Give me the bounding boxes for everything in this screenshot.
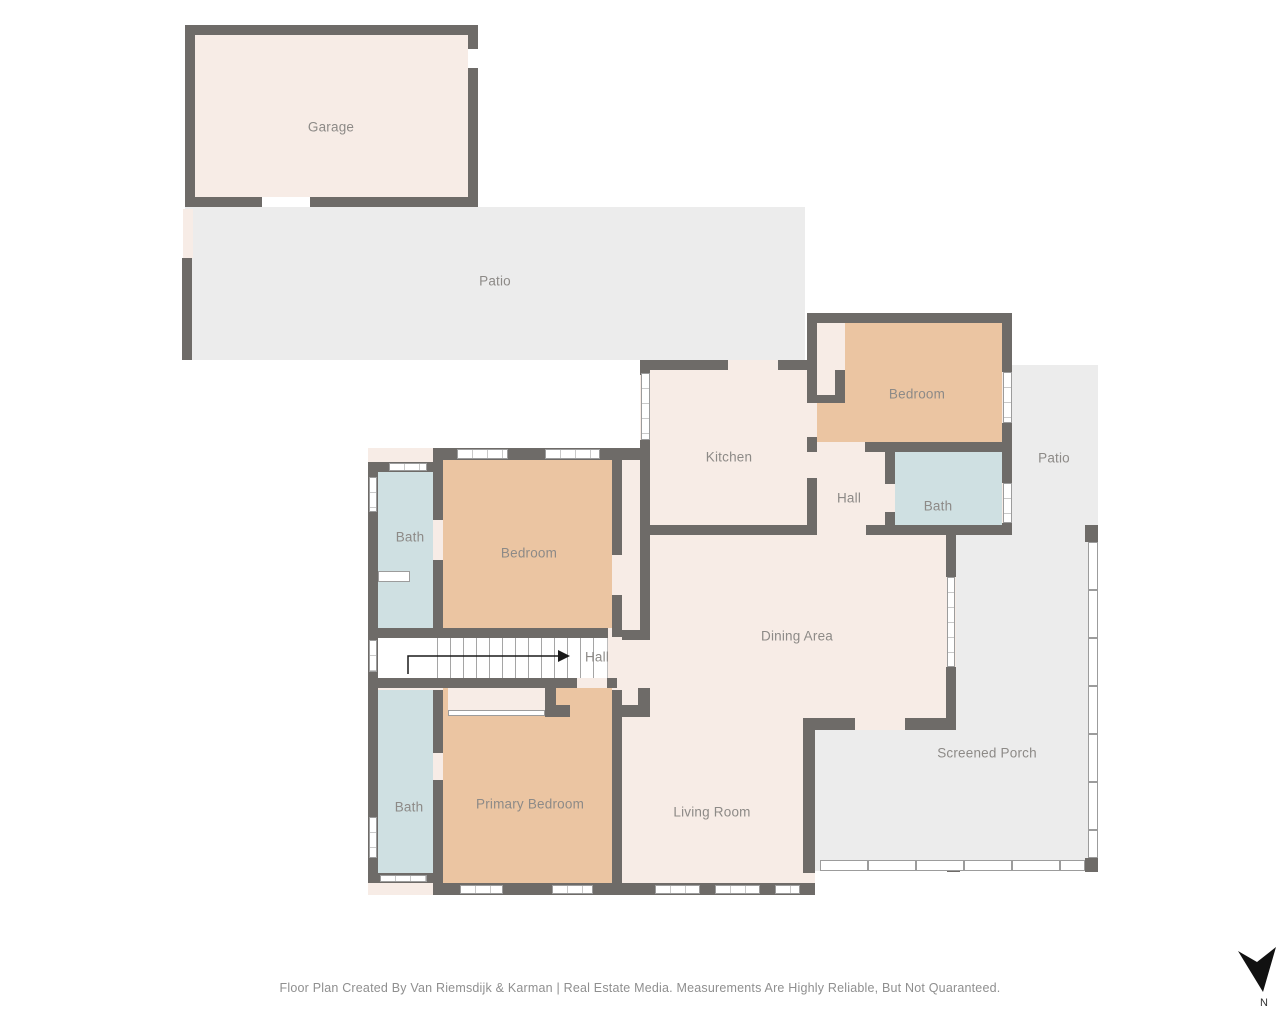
screen-wall xyxy=(1088,542,1098,858)
window xyxy=(775,885,800,894)
wall xyxy=(1002,523,1012,535)
wall xyxy=(946,535,956,577)
window xyxy=(1003,483,1012,523)
wall xyxy=(368,628,608,638)
bath-w-area xyxy=(378,470,433,632)
primary-closet-area xyxy=(448,688,545,712)
window xyxy=(947,577,955,667)
window xyxy=(641,373,650,440)
wall xyxy=(807,718,855,730)
wall xyxy=(433,690,443,753)
window xyxy=(460,885,503,894)
window xyxy=(369,477,377,512)
window xyxy=(389,463,427,471)
floor-plan: Garage Patio Kitchen Bedroom Hall Bath P… xyxy=(0,0,1280,1024)
wall xyxy=(807,313,817,403)
bedroom-ne-area xyxy=(817,403,845,442)
wall xyxy=(807,313,1012,323)
bath-sw-area xyxy=(378,690,433,875)
primary-bedroom-area xyxy=(443,688,612,885)
wall xyxy=(622,630,650,640)
wall xyxy=(807,478,817,535)
wall xyxy=(185,25,478,35)
wall xyxy=(185,197,262,207)
wall xyxy=(612,595,622,637)
patio-e-area xyxy=(1012,365,1098,535)
living-room-area xyxy=(608,630,815,895)
north-arrow-icon: N xyxy=(1230,940,1280,1012)
bath-ne-area xyxy=(895,452,1002,525)
door-opening xyxy=(183,209,193,258)
window xyxy=(1003,372,1012,423)
wall xyxy=(310,197,478,207)
wall xyxy=(1002,453,1012,483)
bedroom-w-area xyxy=(443,460,612,628)
window xyxy=(655,885,700,894)
wall xyxy=(1085,858,1098,872)
wall xyxy=(612,690,622,883)
wall xyxy=(607,678,617,688)
footer-credit: Floor Plan Created By Van Riemsdijk & Ka… xyxy=(0,981,1280,995)
stair-direction-arrow xyxy=(398,646,578,682)
wall xyxy=(778,360,817,370)
wall xyxy=(612,460,622,555)
wall xyxy=(865,442,1012,452)
wall xyxy=(640,525,807,535)
screen-wall xyxy=(820,860,1085,871)
window xyxy=(552,885,593,894)
wall xyxy=(545,705,570,717)
window xyxy=(380,875,427,882)
wall xyxy=(468,35,478,49)
wall xyxy=(885,452,895,484)
wall xyxy=(1085,525,1098,542)
wall xyxy=(835,370,845,403)
bath-counter xyxy=(378,571,410,582)
wall xyxy=(640,360,728,370)
wall xyxy=(468,68,478,207)
garage-area xyxy=(195,35,468,197)
window xyxy=(457,449,508,459)
wall xyxy=(182,258,192,360)
window xyxy=(369,817,377,858)
wall xyxy=(433,780,443,885)
wall xyxy=(803,718,815,873)
wall xyxy=(640,440,650,640)
wall xyxy=(866,525,1012,535)
screened-porch-area xyxy=(815,730,1098,871)
compass-north-label: N xyxy=(1260,997,1268,1009)
window xyxy=(545,449,600,459)
closet-door xyxy=(448,710,545,716)
wall xyxy=(1002,323,1012,372)
wall xyxy=(185,25,195,207)
window xyxy=(715,885,760,894)
bedroom-ne-area xyxy=(845,323,1002,442)
kitchen-area xyxy=(640,360,817,535)
wall xyxy=(946,667,956,730)
wall xyxy=(433,460,443,520)
patio-nw-area xyxy=(185,207,805,360)
window xyxy=(369,640,377,672)
wall xyxy=(433,560,443,637)
wall xyxy=(807,437,817,452)
